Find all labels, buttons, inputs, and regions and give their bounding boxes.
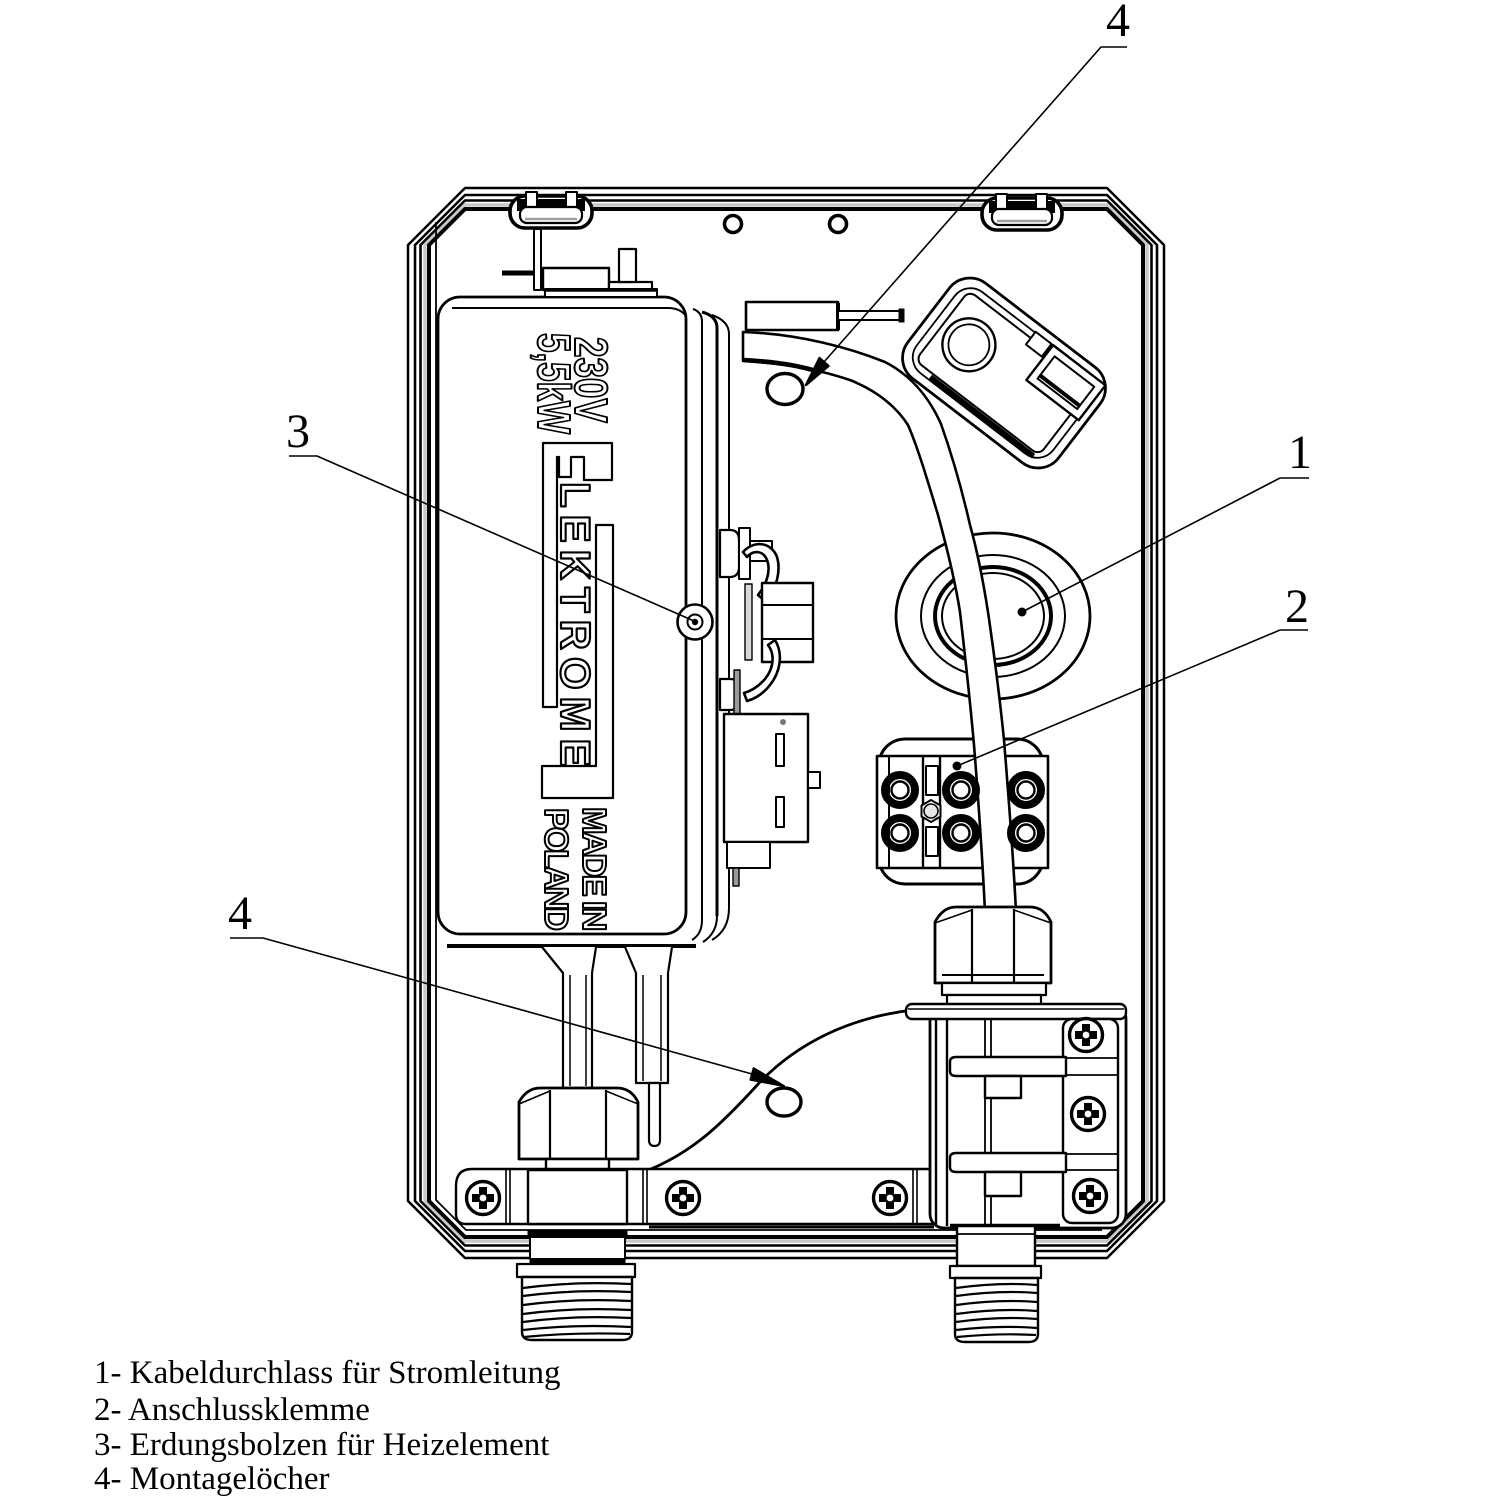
svg-text:LEKTROME: LEKTROME [552,482,599,774]
svg-text:4- Montagelöcher: 4- Montagelöcher [94,1461,330,1497]
svg-text:4: 4 [228,887,252,940]
svg-text:1: 1 [1288,426,1312,479]
svg-text:5,5kW: 5,5kW [528,333,580,434]
svg-text:MADE IN: MADE IN [576,807,613,930]
svg-text:3: 3 [286,405,310,458]
svg-text:1- Kabeldurchlass für Stromlei: 1- Kabeldurchlass für Stromleitung [94,1355,560,1391]
svg-text:3- Erdungsbolzen für Heizeleme: 3- Erdungsbolzen für Heizelement [94,1427,549,1463]
svg-text:2: 2 [1285,580,1309,633]
svg-text:POLAND: POLAND [538,808,575,930]
svg-text:4: 4 [1106,0,1130,47]
svg-text:2- Anschlussklemme: 2- Anschlussklemme [94,1392,370,1428]
